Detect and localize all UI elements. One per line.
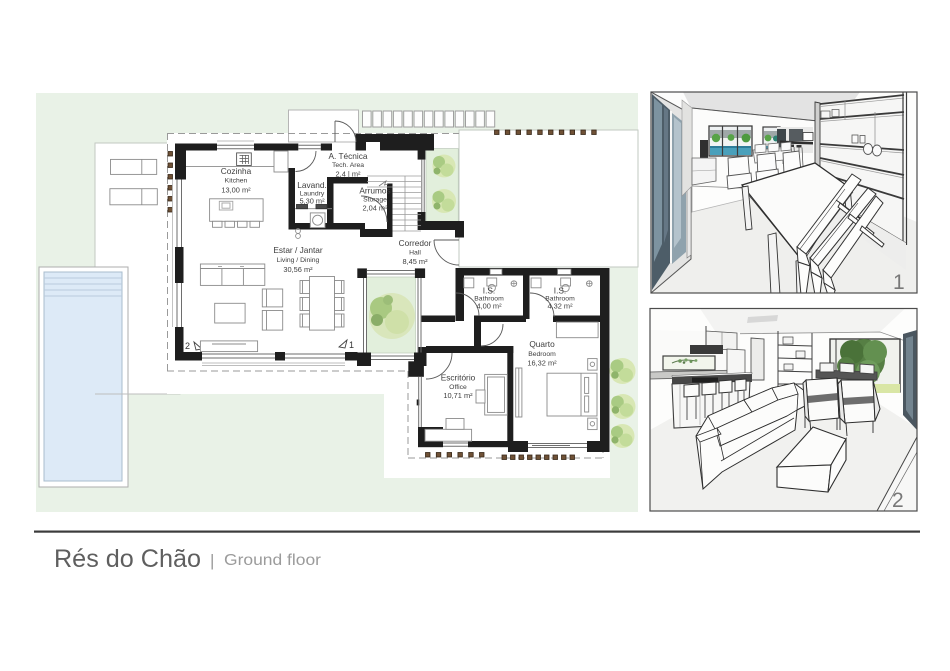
svg-text:2: 2 — [185, 341, 190, 351]
svg-text:Escritório: Escritório — [441, 373, 476, 383]
svg-text:4,32 m²: 4,32 m² — [547, 302, 573, 311]
svg-text:A. Técnica: A. Técnica — [328, 151, 367, 161]
svg-text:Storage: Storage — [363, 197, 387, 204]
svg-text:30,56 m²: 30,56 m² — [283, 265, 313, 274]
svg-text:1: 1 — [349, 340, 354, 350]
svg-text:10,71 m²: 10,71 m² — [443, 391, 473, 400]
svg-text:Estar / Jantar: Estar / Jantar — [273, 245, 323, 255]
svg-text:Quarto: Quarto — [529, 339, 555, 349]
svg-text:Corredor: Corredor — [399, 238, 432, 248]
svg-text:I.S.: I.S. — [483, 286, 495, 296]
svg-text:Office: Office — [449, 384, 467, 391]
svg-text:Arrumos: Arrumos — [359, 186, 390, 196]
svg-text:Hall: Hall — [409, 250, 421, 257]
svg-text:Lavand.: Lavand. — [297, 180, 327, 190]
svg-text:Kitchen: Kitchen — [225, 178, 248, 185]
svg-text:8,45 m²: 8,45 m² — [402, 257, 428, 266]
svg-text:Ground floor: Ground floor — [224, 552, 321, 569]
svg-text:|: | — [210, 551, 214, 570]
svg-text:4,00 m²: 4,00 m² — [476, 302, 502, 311]
svg-text:5,30 m²: 5,30 m² — [299, 197, 325, 206]
svg-text:Tech. Area: Tech. Area — [332, 162, 364, 169]
svg-text:I.S.: I.S. — [554, 286, 566, 296]
svg-text:16,32 m²: 16,32 m² — [527, 359, 557, 368]
svg-text:1: 1 — [893, 271, 905, 294]
svg-text:Cozinha: Cozinha — [221, 166, 252, 176]
svg-text:13,00 m²: 13,00 m² — [221, 186, 251, 195]
svg-text:Living / Dining: Living / Dining — [277, 257, 320, 264]
svg-text:2: 2 — [892, 489, 904, 512]
svg-text:2,04 m²: 2,04 m² — [362, 204, 388, 213]
svg-text:2,4 | m²: 2,4 | m² — [336, 170, 361, 179]
svg-text:Rés do Chão: Rés do Chão — [54, 545, 201, 573]
svg-text:Bedroom: Bedroom — [528, 351, 556, 358]
